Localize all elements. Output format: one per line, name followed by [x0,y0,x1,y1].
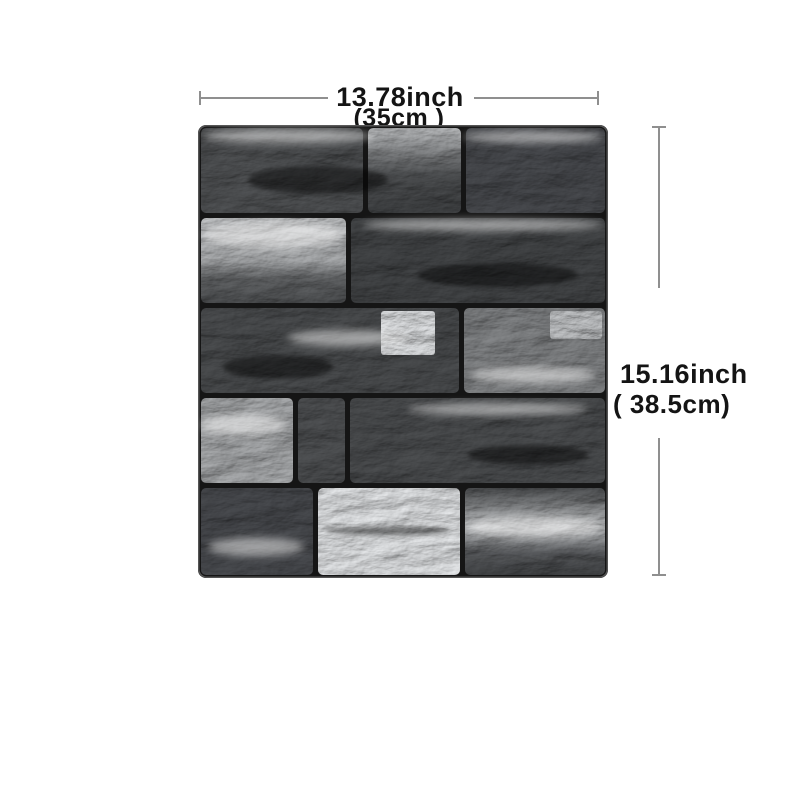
height-dimension-line-upper [658,127,660,288]
height-dimension-line-lower [658,438,660,575]
height-inches-label: 15.16inch [620,360,748,388]
brick-wall-panel-svg [198,125,608,578]
product-dimension-diagram: 13.78inch (35cm ) 15.16inch ( 38.5cm) [0,0,800,800]
height-dimension-tick-bottom [652,574,666,576]
width-dimension-line-right [474,97,598,99]
width-dimension-tick-right [597,91,599,105]
height-metric-label: ( 38.5cm) [613,391,730,418]
brick-wall-panel-image [198,125,608,578]
